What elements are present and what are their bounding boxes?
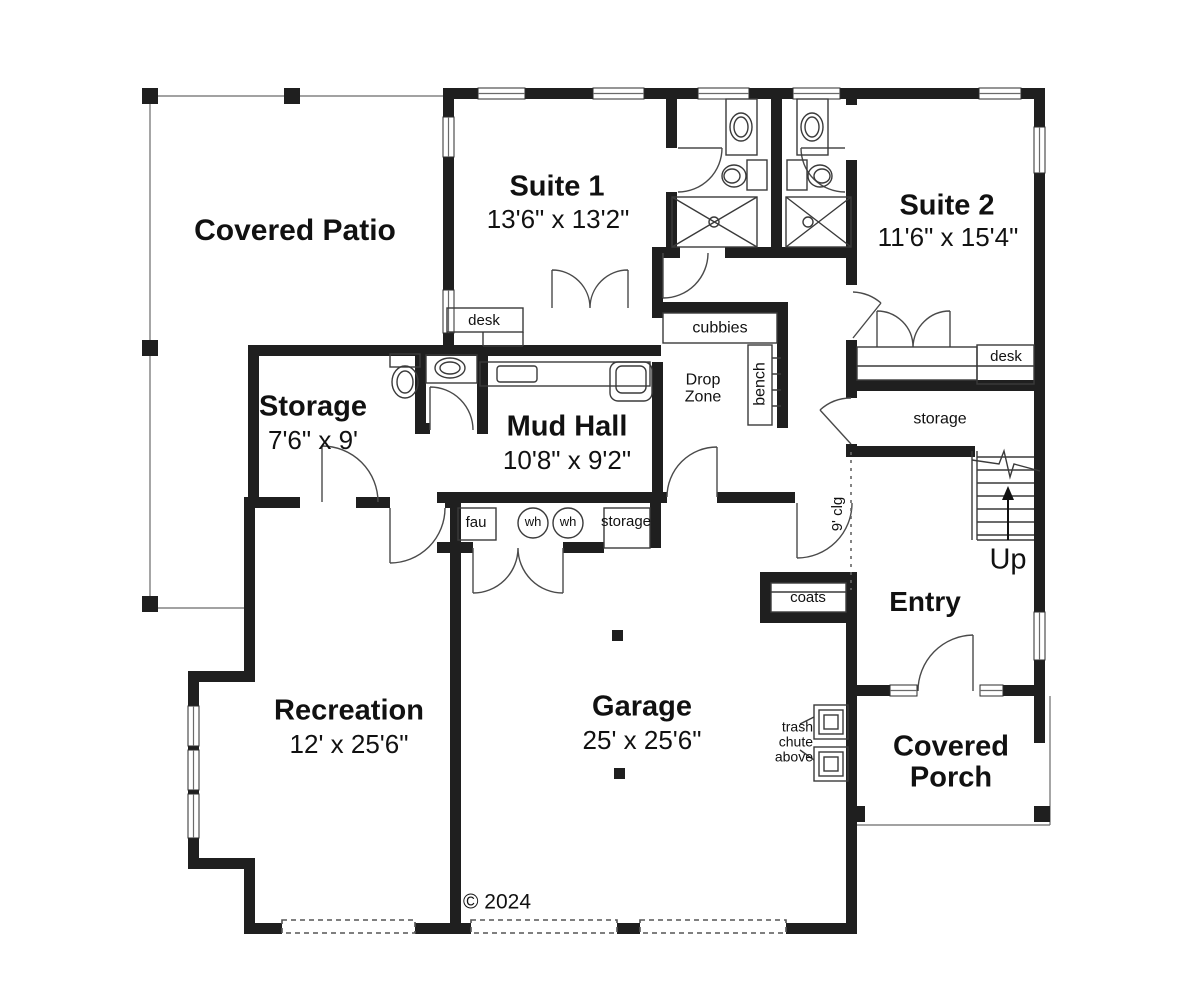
room-label-mud-hall: Mud Hall <box>507 411 628 442</box>
room-dims-garage: 25' x 25'6" <box>583 726 702 754</box>
powder-sink-icon <box>426 355 477 383</box>
label-wh1: wh <box>525 515 542 529</box>
bath1-toilet-icon <box>722 160 767 190</box>
label-bench: bench <box>751 362 768 406</box>
copyright-text: © 2024 <box>463 892 531 915</box>
label-desk-suite2: desk <box>990 349 1022 365</box>
room-dims-storage: 7'6" x 9' <box>268 426 358 454</box>
room-label-recreation: Recreation <box>274 695 424 726</box>
label-wh2: wh <box>560 515 577 529</box>
recreation-door-icon <box>390 508 445 563</box>
room-label-entry: Entry <box>889 587 961 617</box>
room-dims-suite1: 13'6" x 13'2" <box>487 205 630 233</box>
floor-plan: Covered Patio Suite 1 13'6" x 13'2" Suit… <box>0 0 1200 994</box>
mudhall-counter-icon <box>480 362 652 401</box>
bath1-sink-icon <box>726 99 757 155</box>
label-fau: fau <box>466 515 487 531</box>
room-dims-recreation: 12' x 25'6" <box>290 730 409 758</box>
suite2-closet-icon <box>857 347 977 380</box>
bath1-shower-icon <box>672 197 757 247</box>
suite1-door-icon <box>663 253 708 298</box>
room-label-suite1: Suite 1 <box>509 171 604 202</box>
garage-door-openings <box>282 920 786 933</box>
hall-storage-door-icon <box>820 398 851 444</box>
powder-door-icon <box>430 387 473 430</box>
label-trash-chute: trash chute above <box>747 719 813 764</box>
floor-plan-drawing <box>0 0 1200 994</box>
label-up: Up <box>989 544 1026 575</box>
room-label-storage: Storage <box>259 391 367 422</box>
room-label-garage: Garage <box>592 691 692 722</box>
label-storage-utility: storage <box>601 514 651 530</box>
room-dims-suite2: 11'6" x 15'4" <box>878 223 1019 251</box>
room-label-covered-porch: Covered Porch <box>871 732 1031 795</box>
bath1-door-icon <box>678 148 722 192</box>
bath2-shower-icon <box>786 197 851 247</box>
bath2-sink-icon <box>797 99 828 155</box>
label-desk-suite1: desk <box>468 313 500 329</box>
label-nine-clg: 9' clg <box>830 497 846 532</box>
room-label-covered-patio: Covered Patio <box>194 215 396 247</box>
suite1-closet-doors-icon <box>552 270 628 308</box>
label-drop-zone: Drop Zone <box>671 372 735 407</box>
room-label-suite2: Suite 2 <box>899 190 994 221</box>
utility-closet-doors-icon <box>473 548 563 593</box>
front-door-icon <box>918 635 973 691</box>
up-arrow-icon <box>1002 486 1014 540</box>
label-coats: coats <box>790 590 826 606</box>
room-dims-mud-hall: 10'8" x 9'2" <box>503 446 631 474</box>
mudhall-garage-door-icon <box>667 447 717 497</box>
label-cubbies: cubbies <box>692 319 747 336</box>
label-storage-hall: storage <box>913 410 966 427</box>
suite2-closet-doors-icon <box>877 311 950 347</box>
